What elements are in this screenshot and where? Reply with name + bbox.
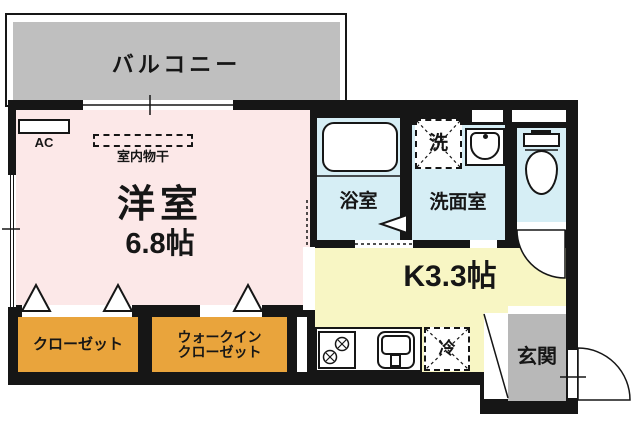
toilet-door-swing-icon [517, 230, 565, 278]
front-door-swing-icon [578, 348, 630, 400]
floorplan-linework [0, 0, 640, 423]
bath-door-triangle-icon [381, 215, 407, 233]
washer-x-mark [417, 121, 460, 167]
entrance-diagonal-line [484, 314, 508, 398]
closet-door-triangle-icon [104, 285, 132, 311]
walk-in-closet-door-triangle-icon [234, 285, 262, 311]
floor-plan: バルコニー クローゼット ウォークイン クローゼット 冷 玄関 AC [0, 0, 640, 423]
closet-door-triangle-icon [22, 285, 50, 311]
